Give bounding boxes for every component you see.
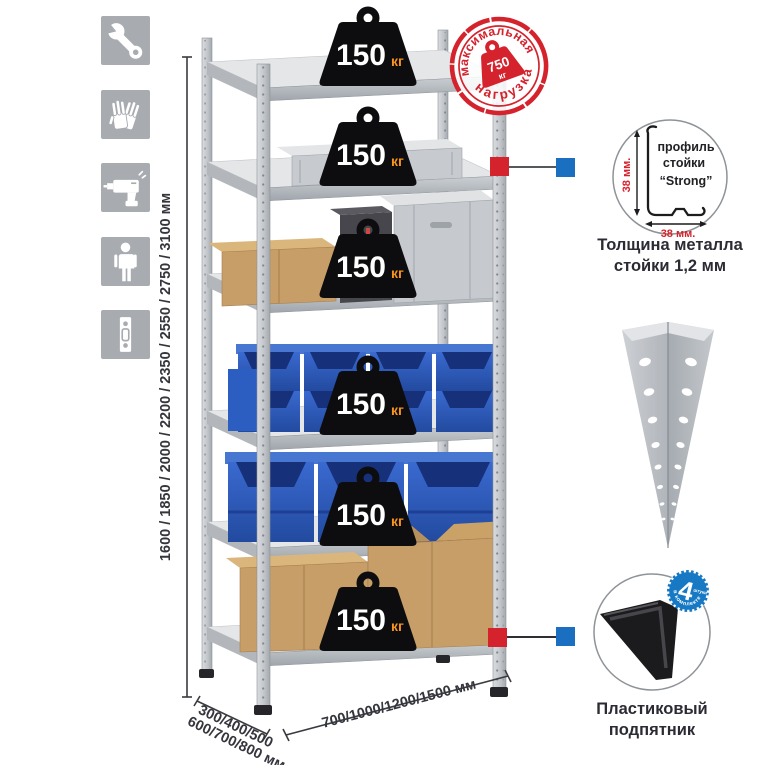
red-marker-square [488, 628, 507, 647]
weight-unit: кг [391, 402, 404, 418]
height-dimension [182, 57, 192, 697]
rack-post-front-left [257, 64, 270, 708]
callout-top [490, 157, 575, 177]
height-dimension-label: 1600 / 1850 / 2000 / 2200 / 2350 / 2550 … [158, 193, 174, 561]
width-dimension-label: 700/1000/1200/1500 мм [320, 677, 477, 732]
weight-unit: кг [391, 618, 404, 634]
foot-caption-line1: Пластиковый [596, 700, 707, 718]
rack-post-back-left [202, 38, 212, 672]
rack-post-front-right [493, 52, 506, 690]
weight-marker: 150 кг [320, 10, 417, 86]
profile-text-line3: “Strong” [660, 174, 713, 188]
profile-caption-line2: стойки 1,2 мм [614, 257, 726, 275]
profile-text-line2: стойки [663, 156, 705, 170]
callout-bottom [488, 627, 575, 647]
weight-value: 150 [336, 499, 386, 532]
corner-post-photo [622, 322, 714, 548]
weight-unit: кг [391, 53, 404, 69]
cardboard-box-small [208, 238, 336, 306]
red-marker-square [490, 157, 509, 176]
profile-dim-vertical: 38 мм. [621, 158, 633, 193]
plastic-foot-detail: 4 штуки в комплекте Пластиковый подпятни… [594, 566, 713, 739]
blue-marker-square [556, 627, 575, 646]
max-load-stamp: максимальная нагрузка 750 кг [439, 6, 559, 126]
weight-value: 150 [336, 39, 386, 72]
weight-value: 150 [336, 139, 386, 172]
profile-detail: 38 мм. 38 мм. профиль стойки “Strong” То… [597, 120, 743, 275]
profile-text-line1: профиль [657, 140, 714, 154]
weight-value: 150 [336, 251, 386, 284]
weight-marker: 150 кг [320, 110, 417, 186]
weight-unit: кг [391, 513, 404, 529]
weight-unit: кг [391, 265, 404, 281]
weight-unit: кг [391, 153, 404, 169]
product-infographic: 150 кг 150 кг 150 кг 150 кг [0, 0, 765, 765]
blue-marker-square [556, 158, 575, 177]
profile-caption-line1: Толщина металла [597, 236, 743, 254]
scene-canvas: 150 кг 150 кг 150 кг 150 кг [0, 0, 765, 765]
depth-dimension-label: 300/400/500 600/700/800 мм [185, 700, 294, 765]
weight-value: 150 [336, 388, 386, 421]
weight-value: 150 [336, 604, 386, 637]
foot-caption-line2: подпятник [609, 721, 696, 739]
